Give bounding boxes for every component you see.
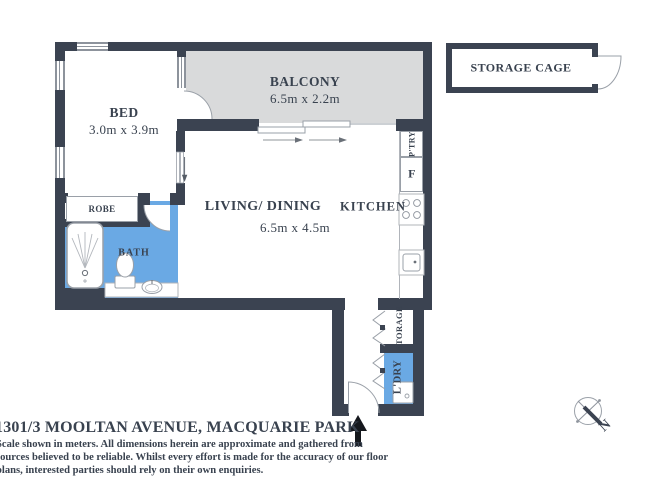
wall-kitchen-bottom xyxy=(378,298,432,310)
kitchen-label: KITCHEN xyxy=(340,200,406,215)
wall-bed-balcony-top xyxy=(177,42,186,57)
storage-bifold-door xyxy=(373,311,385,346)
compass-north-label: N xyxy=(597,417,615,435)
wall-laundry-bottom xyxy=(378,404,424,416)
storage-cage-label: STORAGE CAGE xyxy=(471,61,572,76)
disclaimer-line-3: plans, interested parties should rely on… xyxy=(0,464,388,477)
bed-room-label: BED xyxy=(110,105,139,121)
storage-cage-door-arc xyxy=(598,56,621,89)
disclaimer-line-2: sources believed to be reliable. Whilst … xyxy=(0,451,388,464)
wall-entry-stub xyxy=(332,404,349,416)
robe-label: ROBE xyxy=(88,204,115,214)
fridge-label: F xyxy=(408,167,416,182)
property-address: 1301/3 MOOLTAN AVENUE, MACQUARIE PARK xyxy=(0,419,360,437)
living-dining-label: LIVING/ DINING xyxy=(205,199,321,215)
bed-window-top xyxy=(77,42,108,51)
wall-bed-living-a xyxy=(176,131,185,152)
bed-window-left-lower xyxy=(55,147,65,178)
wall-balcony-bottom-right xyxy=(396,119,424,131)
living-dining-dims: 6.5m x 4.5m xyxy=(260,220,330,236)
balcony-dims: 6.5m x 2.2m xyxy=(270,91,340,107)
bed-window-left-upper xyxy=(55,61,65,90)
wall-balcony-bottom-left xyxy=(177,119,259,131)
bath-label: BATH xyxy=(118,248,150,259)
disclaimer-text: Scale shown in meters. All dimensions he… xyxy=(0,438,388,477)
kitchen-sink xyxy=(399,250,424,275)
balcony-label: BALCONY xyxy=(270,74,340,90)
wall-bottom-main xyxy=(55,298,345,310)
bedroom-sliding-door xyxy=(177,152,188,183)
wall-top-a xyxy=(55,42,77,51)
wall-corridor-left xyxy=(332,298,344,416)
wall-right-lower xyxy=(413,310,424,404)
pantry-label: P'TRY xyxy=(408,131,417,157)
wall-robe-right xyxy=(138,193,150,227)
balcony-sliding-door xyxy=(258,121,396,143)
wall-bath-top-right xyxy=(170,193,185,205)
compass: N xyxy=(575,398,615,435)
disclaimer-line-1: Scale shown in meters. All dimensions he… xyxy=(0,438,388,451)
storage-cage-door-gap xyxy=(591,57,599,84)
storage-label: STORAGE xyxy=(394,306,404,350)
entry-door-arc xyxy=(348,382,379,413)
wall-top-b xyxy=(108,42,432,51)
bed-room-dims: 3.0m x 3.9m xyxy=(89,122,159,138)
laundry-label: L'DRY xyxy=(393,360,404,394)
floor-plan: N BED 3.0m x 3.9m BALCONY 6.5m x 2.2m LI… xyxy=(0,0,660,495)
wall-right-upper xyxy=(423,42,432,308)
bed-balcony-window xyxy=(177,57,186,88)
